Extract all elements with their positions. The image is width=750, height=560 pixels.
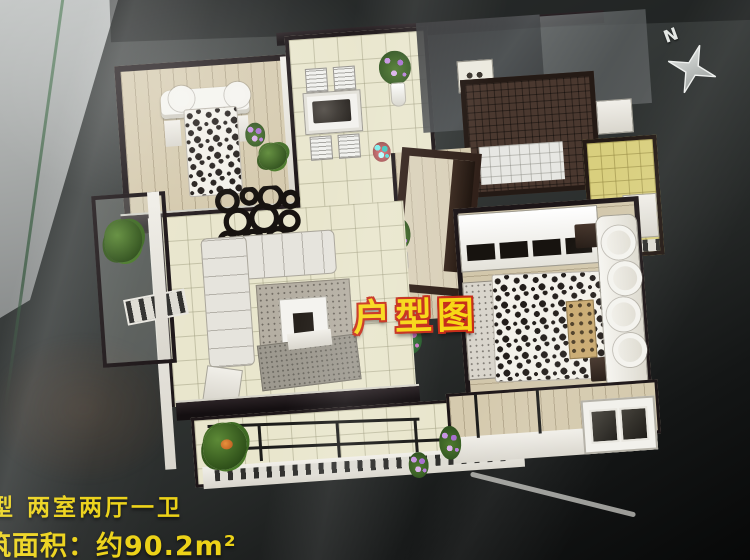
caption-layout: 型 两室两厅一卫: [0, 488, 183, 522]
flower-vase: [390, 82, 407, 107]
sofa-chaise: [200, 236, 255, 369]
floorplan-title-badge: 户型图: [352, 284, 479, 341]
bed-dalmatian: [183, 106, 243, 198]
board-edge-highlight: [470, 472, 636, 518]
display-board-photo: 户型图 型 两室两厅一卫 筑面积：约90.2m² N: [0, 0, 750, 560]
bathroom-floor: [479, 141, 565, 185]
window-pane: [619, 406, 649, 442]
dining-table: [302, 89, 363, 135]
dining-chair: [305, 68, 329, 93]
refrigerator: [596, 98, 634, 134]
bed-throw: [566, 299, 598, 359]
window-frame: [581, 395, 659, 454]
floorplan-model: [81, 7, 687, 506]
dining-chair: [310, 135, 334, 160]
window-pane: [589, 408, 619, 444]
dining-chair: [337, 133, 361, 158]
dining-chair: [333, 66, 357, 91]
wardrobe-panel: [466, 243, 495, 261]
caption-area: 筑面积：约90.2m²: [0, 524, 237, 560]
nightstand-white: [164, 120, 182, 147]
tableware: [312, 99, 351, 124]
compass-star-icon: [666, 40, 720, 100]
wardrobe-panel: [499, 241, 528, 259]
wardrobe-panel: [532, 239, 561, 257]
